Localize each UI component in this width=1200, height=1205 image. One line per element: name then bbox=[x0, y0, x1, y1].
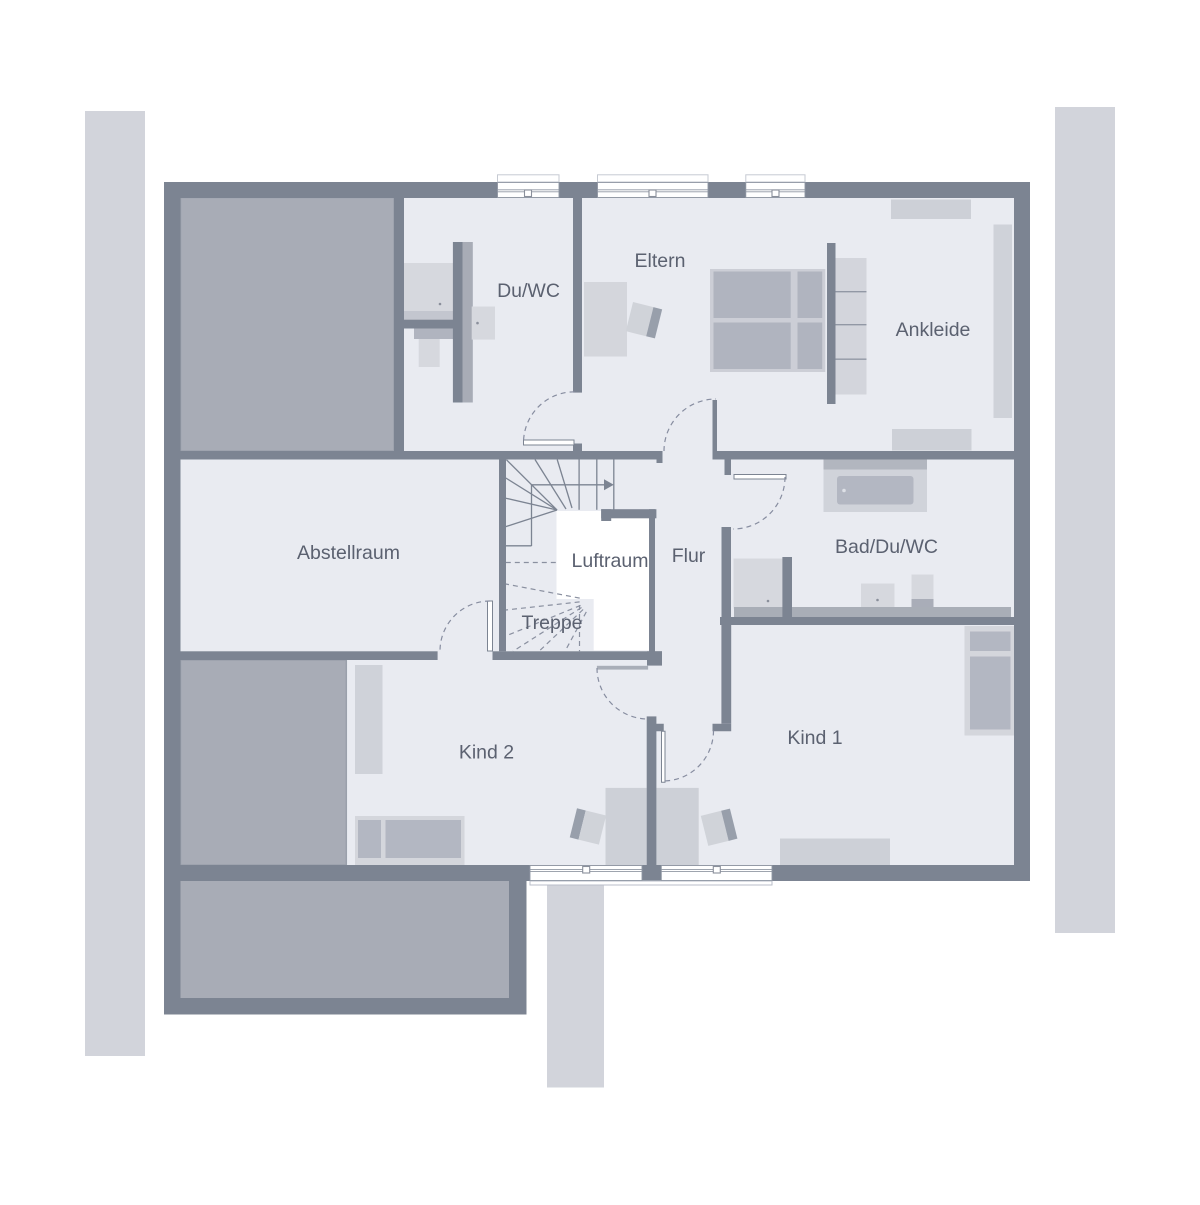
svg-text:Bad/Du/WC: Bad/Du/WC bbox=[835, 536, 938, 558]
svg-text:Ankleide: Ankleide bbox=[896, 319, 971, 341]
svg-text:Du/WC: Du/WC bbox=[497, 280, 560, 302]
svg-text:Kind 1: Kind 1 bbox=[787, 727, 842, 749]
svg-text:Treppe: Treppe bbox=[521, 612, 582, 634]
svg-text:Flur: Flur bbox=[672, 545, 706, 567]
svg-text:Luftraum: Luftraum bbox=[572, 550, 649, 572]
svg-text:Kind 2: Kind 2 bbox=[459, 742, 514, 764]
svg-text:Eltern: Eltern bbox=[635, 250, 686, 272]
svg-text:Abstellraum: Abstellraum bbox=[297, 542, 400, 564]
